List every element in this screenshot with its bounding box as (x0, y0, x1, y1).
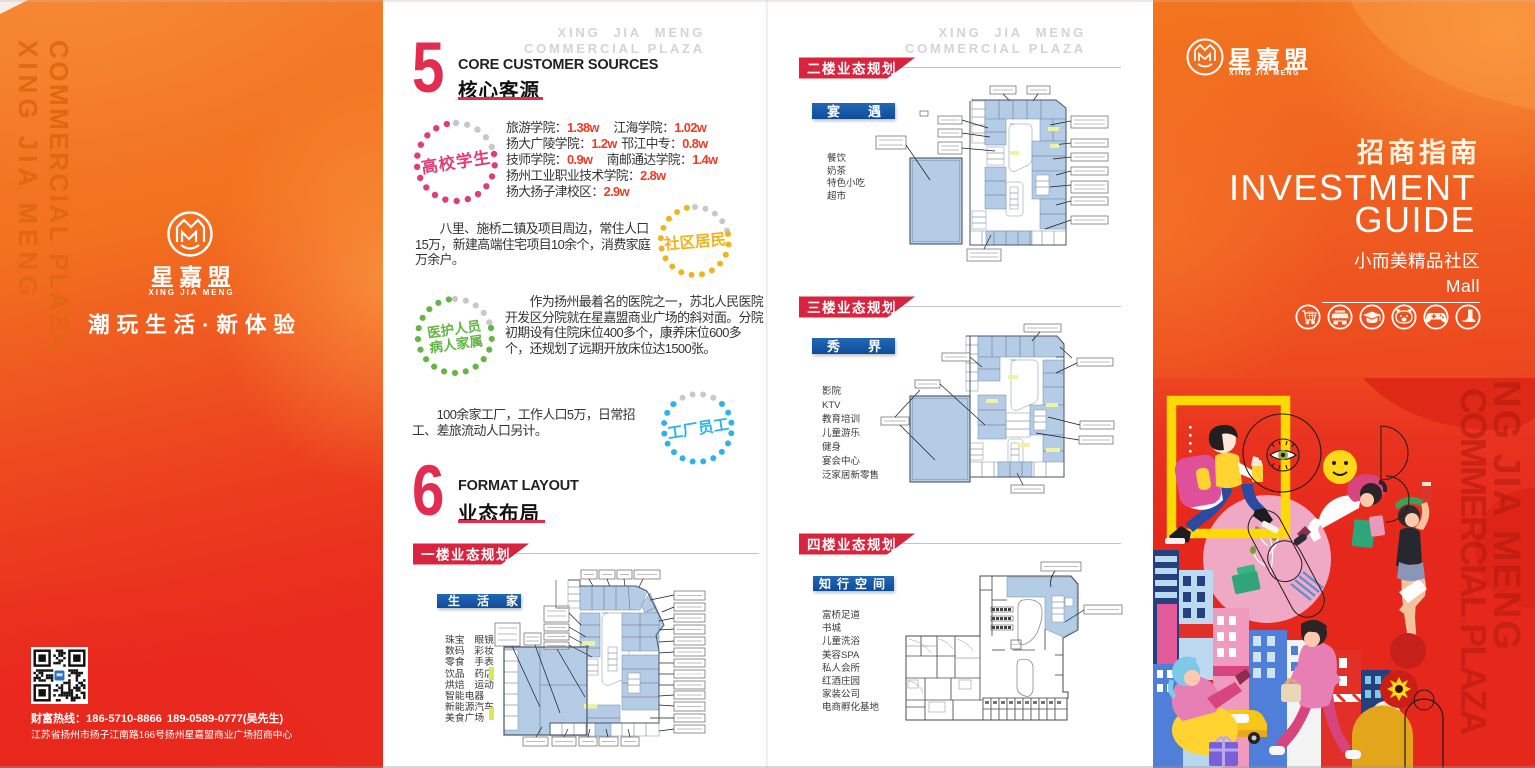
svg-text:二楼业态规划: 二楼业态规划 (807, 61, 897, 77)
svg-text:四楼业态规划: 四楼业态规划 (807, 537, 897, 553)
svg-text:三楼业态规划: 三楼业态规划 (807, 300, 897, 316)
svg-text:高校学生: 高校学生 (420, 147, 492, 178)
svg-text:工厂员工: 工厂员工 (666, 415, 731, 443)
svg-text:社区居民: 社区居民 (662, 229, 726, 253)
